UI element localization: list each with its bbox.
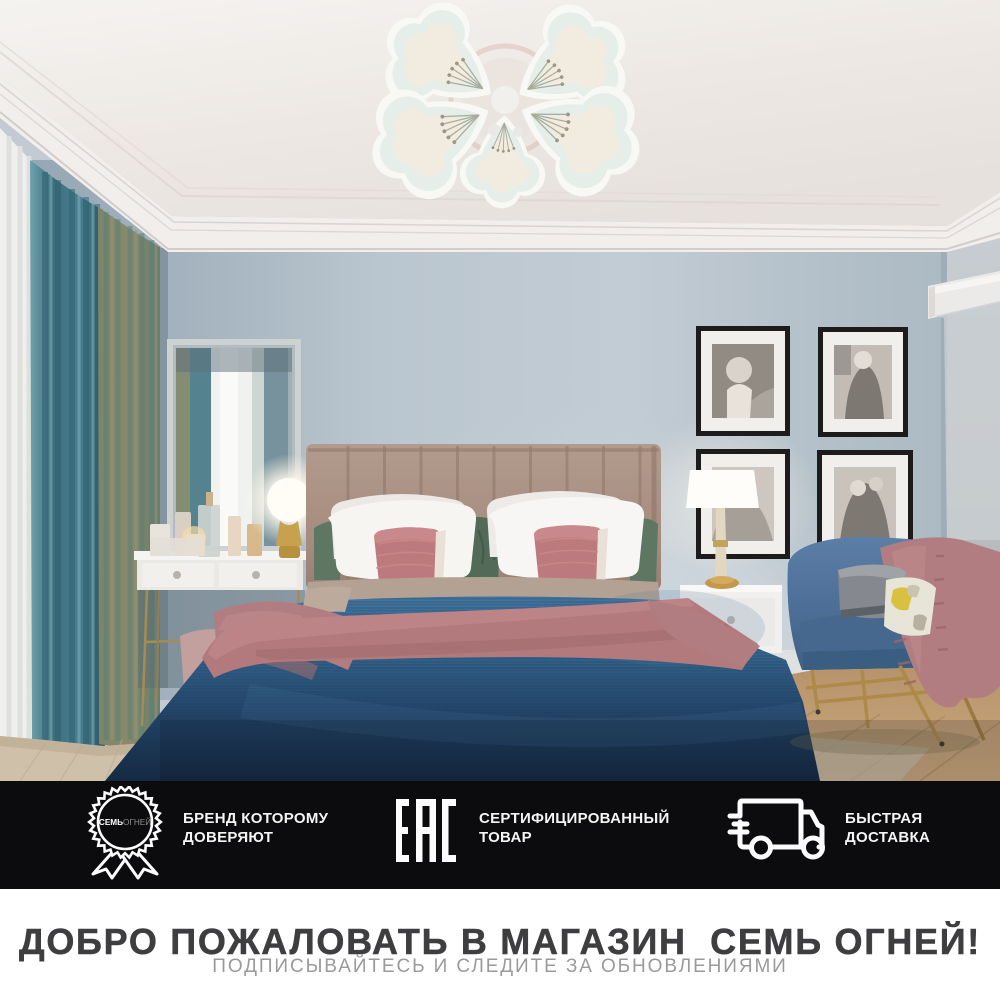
svg-text:СЕМЬОГНЕЙ: СЕМЬОГНЕЙ	[99, 816, 151, 827]
